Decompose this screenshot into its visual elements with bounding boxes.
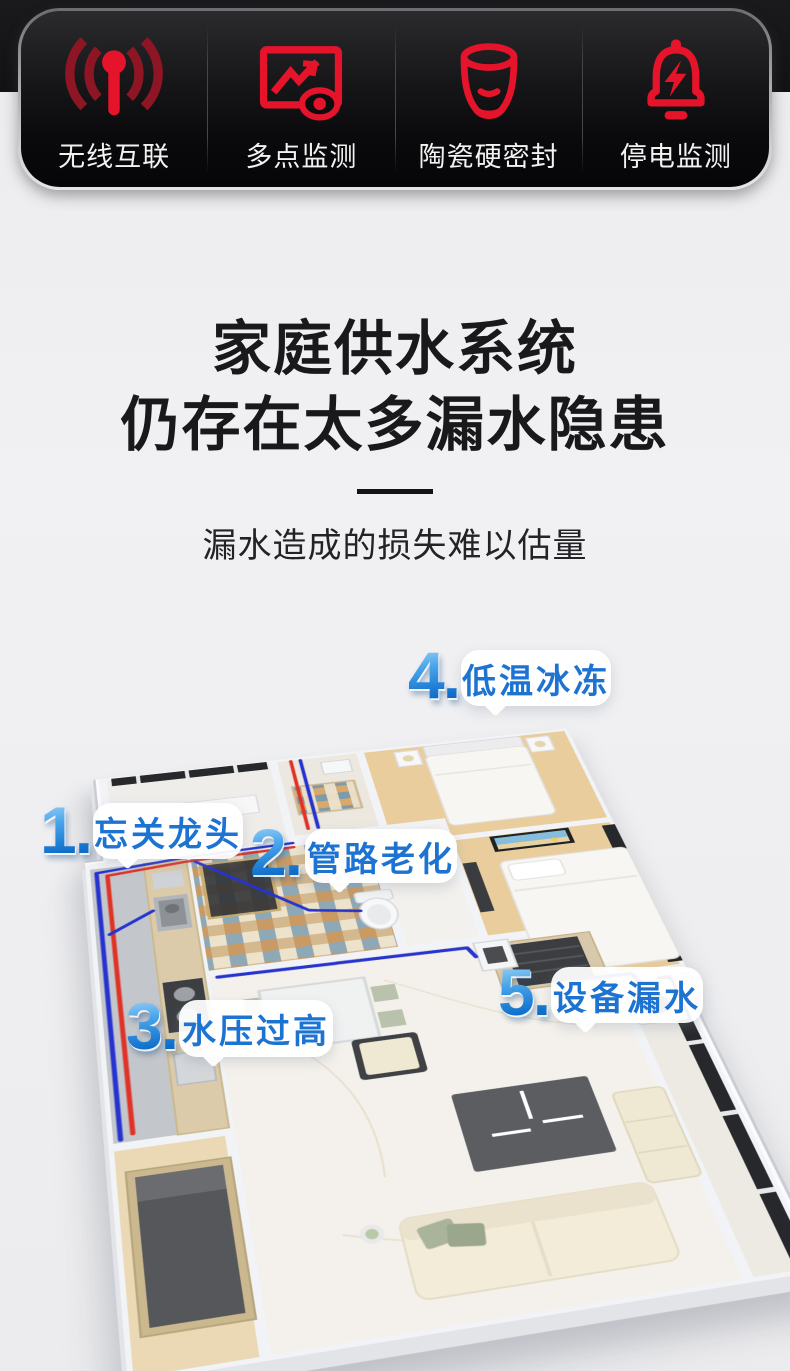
feature-label: 多点监测 — [245, 135, 357, 174]
callout-label: 低温冰冻 — [462, 654, 610, 703]
callout-number: 3. — [126, 995, 177, 1058]
feature-item-monitor: 多点监测 — [208, 11, 394, 187]
callout-5: 5. 设备漏水 — [498, 961, 703, 1024]
callout-3: 3. 水压过高 — [126, 995, 333, 1058]
callout-number: 4. — [408, 644, 459, 707]
headline-block: 家庭供水系统 仍存在太多漏水隐患 漏水造成的损失难以估量 — [0, 312, 790, 567]
feature-bar: 无线互联 多点监测 — [21, 11, 769, 187]
feature-item-wireless: 无线互联 — [21, 11, 207, 187]
callout-label: 管路老化 — [307, 832, 455, 881]
small-bath-sink — [321, 759, 353, 774]
screen-monitor-icon — [249, 33, 353, 129]
headline-subtitle: 漏水造成的损失难以估量 — [0, 518, 790, 567]
feature-bar-rim: 无线互联 多点监测 — [18, 8, 772, 190]
callout-2: 2. 管路老化 — [250, 821, 457, 884]
promo-page: 无线互联 多点监测 — [0, 0, 790, 1371]
callout-number: 5. — [498, 961, 549, 1024]
feature-label: 陶瓷硬密封 — [419, 135, 559, 174]
callout-pill: 管路老化 — [305, 829, 457, 883]
title-divider — [357, 489, 433, 494]
callout-label: 水压过高 — [182, 1004, 330, 1053]
callout-1: 1. 忘关龙头 — [40, 799, 243, 862]
ceramic-valve-icon — [437, 33, 541, 129]
feature-item-alarm: 停电监测 — [583, 11, 769, 187]
callout-label: 设备漏水 — [553, 971, 701, 1020]
headline-line1: 家庭供水系统 — [0, 312, 790, 388]
wireless-signal-icon — [62, 33, 166, 129]
feature-item-ceramic: 陶瓷硬密封 — [396, 11, 582, 187]
floor-plan-scene: 1. 忘关龙头 2. 管路老化 3. 水压过高 4. 低温冰冻 5. — [0, 600, 790, 1371]
power-outage-alarm-icon — [624, 33, 728, 129]
callout-pill: 水压过高 — [179, 1000, 333, 1057]
callout-pill: 忘关龙头 — [93, 803, 243, 859]
feature-label: 停电监测 — [620, 135, 732, 174]
callout-number: 2. — [250, 821, 301, 884]
callout-4: 4. 低温冰冻 — [408, 644, 611, 707]
callout-pill: 低温冰冻 — [461, 650, 611, 706]
callout-pill: 设备漏水 — [551, 967, 703, 1023]
callout-number: 1. — [40, 799, 91, 862]
feature-label: 无线互联 — [58, 135, 170, 174]
headline-line2: 仍存在太多漏水隐患 — [0, 388, 790, 464]
callout-label: 忘关龙头 — [94, 807, 242, 856]
